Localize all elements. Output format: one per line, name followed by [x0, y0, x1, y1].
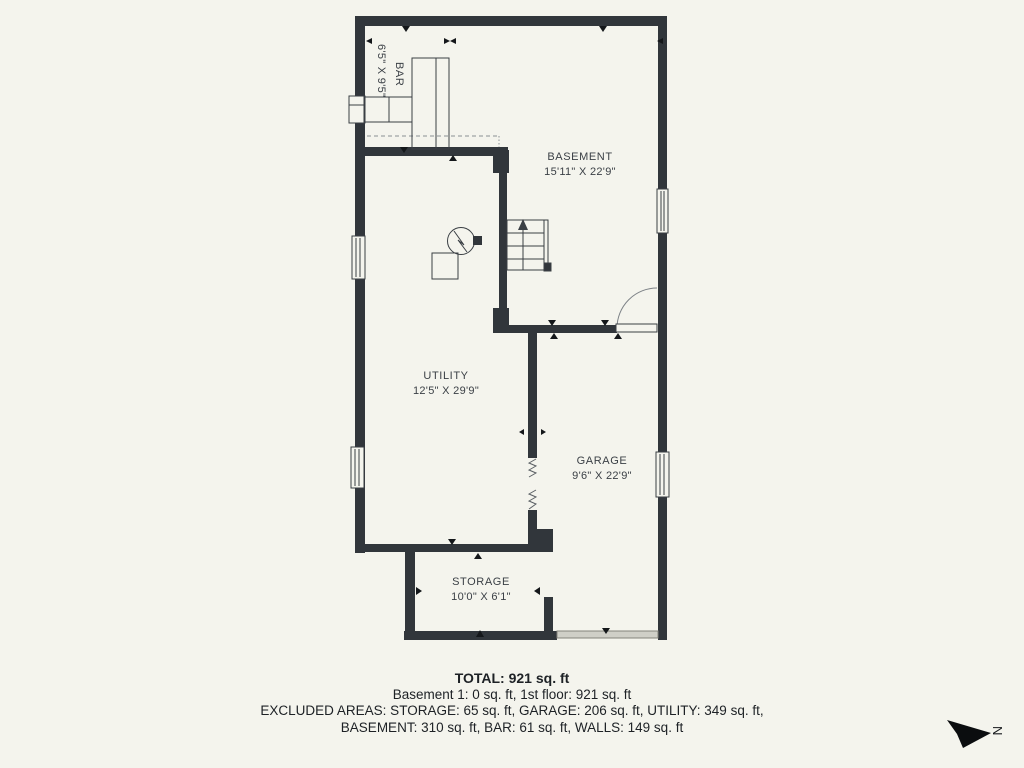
wall-corner-block-upper — [528, 529, 553, 544]
wall-right — [658, 16, 667, 640]
bar-counter — [364, 97, 412, 122]
furnace-icon — [432, 253, 458, 279]
overhang-dashed-line — [367, 136, 499, 147]
window-right-basement — [657, 189, 668, 233]
floor-plan: N 6'5" X 9'5" BAR BASEMENT 15'11" X 22'9… — [0, 0, 1024, 768]
room-label-basement: BASEMENT 15'11" X 22'9" — [510, 150, 650, 180]
wall-corner-block-lower — [515, 544, 553, 552]
wall-basement-bottom — [499, 325, 617, 333]
summary-excluded-1: EXCLUDED AREAS: STORAGE: 65 sq. ft, GARA… — [0, 703, 1024, 720]
window-left-utility — [352, 236, 365, 279]
wall-pier-top — [493, 150, 509, 173]
wall-basement-divider-h — [355, 147, 508, 156]
door-swing-arc — [617, 288, 657, 328]
room-label-garage: GARAGE 9'6" X 22'9" — [532, 454, 672, 484]
room-label-bar: BAR — [392, 62, 405, 86]
bar-niche-window — [349, 96, 365, 123]
wall-garage-utility-lower — [528, 510, 537, 530]
wall-top — [355, 16, 667, 26]
wall-basement-divider-v — [499, 147, 507, 333]
garage-door — [557, 631, 658, 638]
wall-garage-utility-upper — [528, 333, 537, 458]
summary-floors: Basement 1: 0 sq. ft, 1st floor: 921 sq.… — [0, 687, 1024, 704]
room-label-utility: UTILITY 12'5" X 29'9" — [376, 369, 516, 399]
room-label-storage: STORAGE 10'0" X 6'1" — [411, 575, 551, 605]
area-summary: TOTAL: 921 sq. ft Basement 1: 0 sq. ft, … — [0, 670, 1024, 736]
water-heater-icon — [448, 228, 483, 255]
door — [616, 288, 657, 332]
stair-newel-post — [544, 263, 551, 271]
stairs-up-icon — [507, 219, 551, 271]
window-left-lower — [351, 447, 364, 488]
summary-excluded-2: BASEMENT: 310 sq. ft, BAR: 61 sq. ft, WA… — [0, 720, 1024, 737]
summary-total: TOTAL: 921 sq. ft — [0, 670, 1024, 687]
room-dims-bar: 6'5" X 9'5" — [374, 44, 387, 97]
wall-utility-bottom — [355, 544, 517, 552]
stairs-up-arrow — [518, 219, 528, 230]
door-leaf — [616, 324, 657, 332]
upper-stairs — [412, 58, 449, 149]
